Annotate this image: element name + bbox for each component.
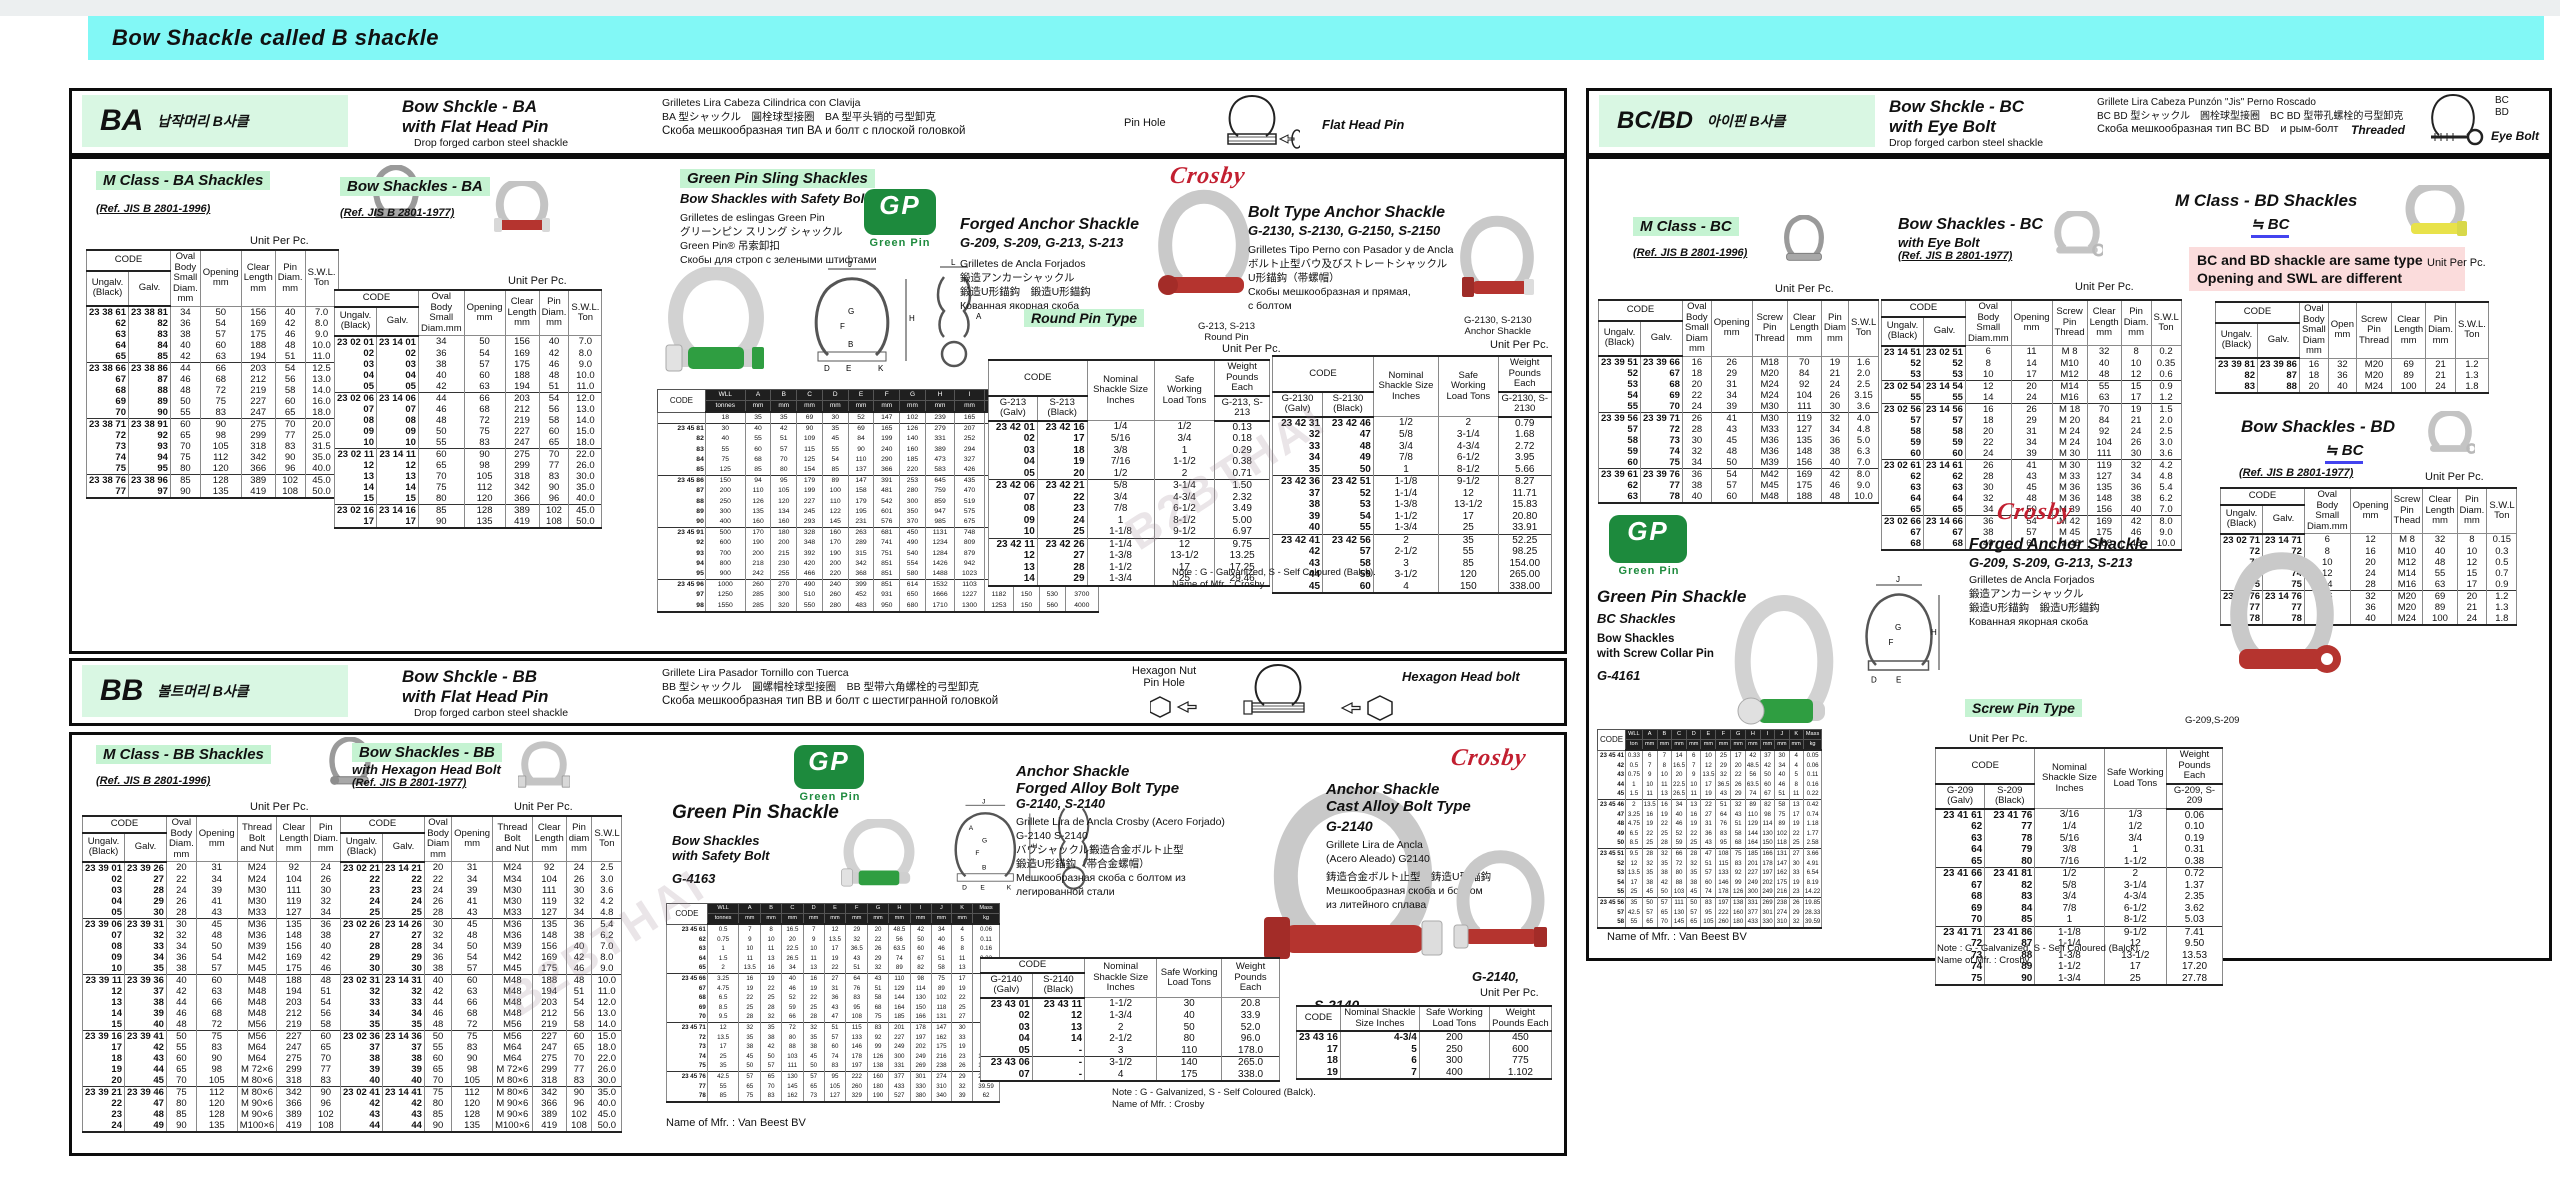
gp-bc-heading: Green Pin Shackle BC Shackles Bow Shackl…	[1597, 587, 1746, 683]
table-cell: 60	[464, 370, 505, 381]
table-cell: 48	[539, 370, 569, 381]
table-cell: 30	[822, 412, 848, 424]
table-cell: 194	[505, 381, 539, 393]
table-cell: 16	[1642, 810, 1657, 820]
table-cell: 07	[981, 1069, 1033, 1082]
table-cell: 102	[900, 412, 926, 424]
table-cell: 59	[781, 1003, 803, 1013]
table-cell: 23 41 81	[1985, 868, 2035, 880]
table-cell: 42	[1273, 546, 1323, 558]
table-cell: 7	[1657, 750, 1671, 761]
table-cell: 328	[797, 528, 823, 539]
table-cell: 131	[931, 1012, 952, 1022]
table-cell: 310	[931, 1082, 952, 1092]
table-cell: 57	[1923, 415, 1965, 426]
table-cell: 36	[2350, 602, 2391, 613]
table-cell: 3/4	[1373, 441, 1438, 453]
table-cell: 35	[803, 1033, 824, 1043]
table-cell: 104	[532, 874, 566, 885]
table-cell: 1182	[984, 590, 1013, 600]
table-cell: 202	[910, 1042, 931, 1052]
table-cell: 72	[667, 1033, 708, 1043]
table-cell: 12	[1154, 538, 1215, 550]
table-row: 23 45 410.336714610251742373040.05	[1598, 750, 1822, 761]
table-cell: 1103	[955, 580, 984, 591]
table-cell: 105	[824, 1082, 846, 1092]
table-cell: 75	[739, 1091, 761, 1102]
table-row: 53531017M1248120.6	[1882, 369, 2182, 381]
table-cell: 400	[705, 517, 745, 528]
table-cell: 69	[667, 1003, 708, 1013]
table-cell: 77	[566, 1064, 592, 1075]
table-cell: 69	[2423, 590, 2457, 602]
table-cell: 11.0	[569, 381, 602, 393]
table-cell: 65	[1882, 504, 1924, 516]
table-cell: M100×6	[493, 1120, 533, 1132]
table-cell: 5.4	[2151, 482, 2181, 493]
table-cell: 08	[335, 415, 377, 426]
table-cell: 6.2	[2151, 493, 2181, 504]
table-cell: 03	[981, 1022, 1033, 1034]
table-cell: 23 39 81	[2216, 358, 2258, 370]
table-cell: 65	[539, 437, 569, 449]
table-cell: 48	[196, 930, 237, 941]
table-cell: 22	[1642, 829, 1657, 839]
table-cell: M 80×6	[237, 1075, 277, 1087]
table-row: 38386090M642757022.0	[341, 1053, 622, 1064]
table-row: 7213.5353880355713392227197162336.54	[667, 1033, 1000, 1043]
table-cell: 6.2	[592, 930, 622, 941]
table-cell: 169	[241, 318, 275, 329]
table-cell: 13	[1657, 789, 1671, 799]
table-cell: M30	[237, 885, 277, 896]
table-cell: 29	[952, 1071, 973, 1081]
table-cell: 2	[1439, 417, 1498, 430]
table-cell: 748	[955, 528, 984, 539]
table-cell: M42	[1752, 469, 1787, 481]
gp-logo-bc-text: Green Pin	[1603, 565, 1695, 577]
table-cell: 3/8	[1087, 445, 1154, 457]
table-cell: 530	[1039, 590, 1065, 600]
table-cell: 70	[87, 407, 129, 419]
table-cell: 62	[1599, 480, 1641, 491]
table-cell: 70	[1787, 356, 1821, 368]
table-row: 23 42 3123 42 461/220.79	[1273, 417, 1552, 430]
table-cell: 175	[532, 963, 566, 975]
table-cell: 222	[846, 1071, 868, 1081]
table-row: 23 41 7123 41 861-1/89-1/27.41	[1936, 926, 2223, 938]
table-cell: 54	[1711, 469, 1752, 481]
table-cell: 47	[824, 1012, 846, 1022]
table-cell: 160	[868, 1071, 889, 1081]
table-cell: 389	[925, 445, 954, 455]
table-cell: M64	[493, 1042, 533, 1053]
table-cell: 160	[822, 528, 848, 539]
table-cell: 23 02 26	[341, 918, 383, 930]
table-cell: 14	[2011, 358, 2052, 369]
table-cell: 60	[745, 445, 771, 455]
table-cell: 419	[241, 486, 275, 498]
table-cell: 23 02 61	[1882, 459, 1924, 471]
table-cell: M33	[493, 907, 533, 919]
table-cell: 0.19	[2167, 833, 2223, 845]
table-cell: 52	[1598, 859, 1626, 869]
table-cell: 65	[566, 1042, 592, 1053]
table-cell: 194	[277, 986, 311, 997]
table-cell: 3.6	[2151, 448, 2181, 460]
table-cell: 1-3/4	[1087, 573, 1154, 586]
page-title: Bow Shackle called B shackle	[88, 25, 439, 51]
table-cell: 75	[1936, 973, 1985, 986]
bc-bow-heading: Bow Shackles - BC with Eye Bolt (Ref. JI…	[1898, 215, 2043, 262]
bd-note: BC and BD shackle are same type Opening …	[2189, 247, 2465, 291]
table-cell: 98	[464, 460, 505, 471]
bb-header-strip: BB 볼트머리 B사클 Bow Shckle - BB with Flat He…	[69, 658, 1567, 726]
table-cell: 645	[925, 476, 954, 487]
table-cell: 63	[667, 944, 708, 954]
table-cell: 2-1/2	[1085, 1033, 1157, 1045]
table-cell: 3700	[1065, 590, 1098, 600]
table-cell: 32	[1789, 917, 1803, 928]
table-cell: 23	[1037, 503, 1087, 515]
table-cell: 222	[1716, 908, 1731, 918]
table-cell: 5.0	[1849, 435, 1879, 446]
table-cell: 30.0	[569, 471, 602, 482]
table-cell: 128	[452, 1109, 493, 1120]
gp-sling-shackle-photo	[660, 267, 772, 385]
table-cell: 247	[241, 407, 275, 419]
table-cell: 32	[311, 896, 341, 907]
table-cell: 20	[2299, 381, 2328, 393]
table-cell: M 33	[2052, 471, 2087, 482]
table-cell: 25	[2104, 973, 2166, 986]
table-row: 496.522255222368358144130102221.77	[1598, 829, 1822, 839]
table-cell: 76	[1716, 819, 1731, 829]
eye-bolt-label: Eye Bolt	[2491, 129, 2539, 143]
table-row: 5742.5576513057952221603773012742928.33	[1598, 908, 1822, 918]
table-cell: 238	[1775, 897, 1789, 907]
table-row: 23 02 4123 14 4175112M 80×63429035.0	[341, 1086, 622, 1098]
table-cell: 50.0	[592, 1120, 622, 1132]
table-cell: 100	[2423, 613, 2457, 625]
table-cell: 675	[955, 517, 984, 528]
table-cell: 60	[566, 1030, 592, 1042]
table-cell: 50	[1157, 1022, 1222, 1034]
table-cell: 851	[874, 580, 900, 591]
g4163-table: CODEWLLABCDEFGHIJKMasstonnesmmmmmmmmmmmm…	[666, 903, 1000, 1103]
g4161-table: CODEWLLABCDEFGHIJKMasstonmmmmmmmmmmmmmmm…	[1597, 729, 1822, 929]
table-cell: 17	[335, 516, 377, 528]
table-cell: 5/16	[1087, 433, 1154, 445]
bow-bd-eq: ≒ BC	[2325, 441, 2363, 464]
table-cell: 13.53	[2167, 950, 2223, 962]
table-cell: 32	[1682, 446, 1711, 457]
table-cell: 28	[1642, 848, 1657, 858]
table-cell: 12	[707, 1022, 739, 1032]
table-cell: 1.3	[2455, 370, 2488, 381]
table-cell: 575	[955, 507, 984, 517]
table-cell: 540	[900, 549, 926, 559]
table-cell: 70	[539, 448, 569, 460]
table-cell: 24	[382, 896, 424, 907]
table-cell: 21	[2457, 602, 2487, 613]
flat-head-pin-diagram-icon	[1200, 92, 1300, 150]
table-row: 7535505711150831971383312692382619.85	[667, 1061, 1000, 1071]
table-cell: 227	[277, 1030, 311, 1042]
g2130-shackle-photo	[1454, 215, 1540, 311]
table-cell: 85	[1985, 914, 2035, 926]
table-row: 23 38 7123 38 9160902757020.0	[87, 419, 339, 431]
table-row: 050542631945111.0	[335, 381, 602, 393]
table-cell: M42	[493, 952, 533, 963]
table-row: 709055832476518.0	[87, 407, 339, 419]
table-cell: 299	[241, 430, 275, 441]
table-cell: 290	[874, 455, 900, 465]
table-cell: 38	[1273, 499, 1323, 511]
table-cell: 135	[277, 918, 311, 930]
table-cell: 144	[888, 993, 910, 1003]
table-cell: 66	[196, 997, 237, 1008]
table-cell: 158	[848, 486, 874, 496]
table-cell: 04	[335, 370, 377, 381]
table-cell: 68	[667, 993, 708, 1003]
table-cell: 80	[1157, 1033, 1222, 1045]
table-cell: 11	[803, 954, 824, 964]
table-cell: 150	[1439, 581, 1498, 594]
table-cell: 179	[848, 497, 874, 507]
table-row: 63633045M 36135365.4	[1882, 482, 2182, 493]
table-cell: 90	[848, 445, 874, 455]
table-cell: 52.25	[1498, 534, 1552, 546]
table-cell: 9.50	[2167, 938, 2223, 950]
table-cell: M56	[493, 1030, 533, 1042]
table-cell: 69	[2392, 358, 2426, 370]
table-cell: 15.83	[1498, 499, 1552, 511]
table-cell: 9	[1687, 770, 1701, 780]
table-cell: 102	[275, 475, 305, 487]
table-cell: 9.0	[592, 963, 622, 975]
table-cell: 260	[745, 580, 771, 591]
table-cell: 11	[1789, 789, 1803, 799]
table-cell: 78	[1985, 833, 2035, 845]
table-row: 508.525285925439568164150118252.58	[1598, 838, 1822, 848]
table-cell: 54	[566, 997, 592, 1008]
table-cell: 29	[124, 896, 166, 907]
table-cell: 33	[952, 1033, 973, 1043]
table-cell: 140	[900, 434, 926, 444]
table-cell: M39	[237, 941, 277, 952]
table-cell: 49	[1598, 829, 1626, 839]
table-cell: 83	[1701, 897, 1716, 907]
table-cell: 26	[1789, 897, 1803, 907]
page-title-bar: Bow Shackle called B shackle	[88, 16, 2544, 60]
table-cell: 162	[931, 1033, 952, 1043]
table-cell: M33	[237, 907, 277, 919]
table-cell: 28	[2350, 579, 2391, 591]
bb-mfr-vanbeest: Name of Mfr. : Van Beest BV	[666, 1117, 806, 1129]
table-row: 68833/44-3/42.35	[1936, 891, 2223, 903]
table-cell: 10.0	[2151, 538, 2181, 550]
table-cell: M30	[1752, 401, 1787, 413]
table-row: 37521-1/41211.71	[1273, 488, 1552, 500]
table-cell: 16.5	[781, 924, 803, 935]
table-cell: M14	[2391, 568, 2423, 579]
table-cell: 51	[846, 963, 868, 973]
table-cell: 2.32	[1215, 492, 1270, 504]
table-cell: 24	[166, 885, 196, 896]
table-cell: 7/16	[1087, 456, 1154, 468]
table-cell: 85	[128, 351, 170, 363]
table-cell: 54	[1323, 511, 1374, 523]
table-cell: 1	[1626, 780, 1643, 790]
bb-m-class-ref: (Ref. JIS B 2801-1996)	[96, 775, 210, 787]
table-cell: 23 39 46	[124, 1086, 166, 1098]
table-row: 23 02 3123 14 314060M481884810.0	[341, 974, 622, 986]
table-cell: 70	[275, 419, 305, 431]
table-cell: M 72×6	[493, 1064, 533, 1075]
table-cell: 23 45 96	[658, 580, 706, 591]
table-cell: 88	[2257, 381, 2299, 393]
table-cell: 32	[2087, 346, 2121, 358]
table-cell: 40	[931, 935, 952, 945]
table-cell: M48	[237, 1008, 277, 1019]
hexagon-nut-icon	[1150, 695, 1210, 719]
table-row: 23 39 8123 39 861632M2069211.2	[2216, 358, 2489, 370]
table-cell: 8	[952, 944, 973, 954]
table-cell: 39	[1273, 511, 1323, 523]
table-cell: 22	[739, 993, 761, 1003]
table-cell: 166	[1760, 848, 1774, 858]
table-cell: 12	[1032, 1010, 1084, 1022]
table-cell: 510	[797, 590, 823, 600]
table-cell: 1.18	[1803, 819, 1821, 829]
table-cell: 80	[170, 463, 200, 475]
table-cell: 88	[781, 1042, 803, 1052]
table-cell: 2-1/2	[1373, 546, 1438, 558]
table-cell: 3/4	[2035, 891, 2104, 903]
bb-hex-nut-label: Hexagon Nut Pin Hole	[1132, 665, 1196, 689]
table-cell: 59	[1882, 437, 1924, 448]
table-cell: 23 39 86	[2257, 358, 2299, 370]
table-row: 09343654M42169428.0	[83, 952, 374, 963]
table-cell: 36	[2121, 482, 2151, 493]
table-cell: 85	[166, 1109, 196, 1120]
table-cell: 1.77	[1803, 829, 1821, 839]
table-cell: 60	[1599, 457, 1641, 469]
table-cell: 74	[1745, 789, 1760, 799]
crosby-logo-bc: Crosby	[1995, 499, 2074, 526]
table-cell: 342	[241, 452, 275, 463]
table-cell: 54	[464, 348, 505, 359]
table-cell: 32	[1642, 859, 1657, 869]
table-cell: 55	[2087, 380, 2121, 392]
table-cell: 175	[277, 963, 311, 975]
table-cell: 6	[2304, 534, 2350, 546]
table-cell: M64	[237, 1053, 277, 1064]
table-cell: 26	[2121, 437, 2151, 448]
table-cell: 92	[277, 862, 311, 874]
table-cell: 35	[707, 1061, 739, 1071]
table-cell: 851	[874, 559, 900, 569]
table-cell: 92	[658, 538, 706, 548]
table-cell: 128	[464, 504, 505, 516]
table-cell: 22	[824, 963, 846, 973]
table-cell: 51	[1716, 799, 1731, 809]
table-cell: 35	[1273, 464, 1323, 476]
bb-bow-table-wrap: CODEOval Body Diam mmOpening mmThread Bo…	[340, 815, 592, 1133]
g2140-cast-table-wrap: CODENominal Shackle Size InchesSafe Work…	[1296, 1005, 1552, 1080]
bow-bd-ref: (Ref. JIS B 2801-1977)	[2239, 467, 2353, 479]
table-cell: 126	[900, 424, 926, 435]
table-cell: 490	[797, 580, 823, 591]
table-cell: 1.5	[1626, 789, 1643, 799]
table-cell: 25	[739, 1003, 761, 1013]
svg-text:B: B	[982, 865, 987, 872]
table-cell: 58	[566, 1019, 592, 1031]
table-cell: 127	[2087, 471, 2121, 482]
table-cell: 48	[1821, 491, 1848, 503]
table-cell: 110	[1745, 810, 1760, 820]
table-cell: 146	[1716, 878, 1731, 888]
table-cell: M10	[2391, 546, 2423, 557]
table-row: 5212323572325111583201178147304.91	[1598, 859, 1822, 869]
table-cell: 9.0	[2151, 527, 2181, 538]
table-cell: 23 42 51	[1323, 476, 1374, 488]
table-cell: 19	[1297, 1067, 1341, 1080]
table-cell: 36	[311, 918, 341, 930]
table-cell: 2	[1373, 534, 1438, 546]
table-cell: 230	[771, 559, 797, 569]
table-cell: 65	[1936, 856, 1985, 868]
table-cell: 24	[2350, 568, 2391, 579]
table-cell: 53	[1599, 379, 1641, 390]
table-cell: 13.25	[1215, 550, 1270, 562]
table-cell: 77	[667, 1082, 708, 1092]
table-cell: 30	[1965, 482, 2011, 493]
table-cell: 60	[1711, 491, 1752, 503]
table-cell: 180	[771, 528, 797, 539]
table-cell: 1.3	[2487, 602, 2517, 613]
table-cell: 90	[539, 482, 569, 493]
table-cell: 119	[1787, 413, 1821, 425]
table-cell: 419	[505, 516, 539, 528]
table-cell: 3-1/4	[1439, 429, 1498, 441]
table-cell: 550	[797, 601, 823, 612]
table-cell: 23 45 76	[667, 1071, 708, 1081]
table-cell: 69	[1936, 903, 1985, 915]
bb-korean-label: 볼트머리 B사클	[157, 681, 248, 701]
table-cell: 34	[166, 941, 196, 952]
table-cell: 43	[846, 954, 868, 964]
table-cell: 42	[910, 924, 931, 935]
table-cell: 09	[335, 426, 377, 437]
table-cell: 3/4	[1087, 492, 1154, 504]
table-cell: 2.5	[1849, 379, 1879, 390]
table-cell: 112	[200, 452, 241, 463]
green-pin-logo-text: Green Pin	[858, 237, 942, 249]
table-cell: 19	[952, 1042, 973, 1052]
table-row: 23 02 0623 14 0644662035412.0	[335, 392, 602, 404]
table-cell: 130	[910, 993, 931, 1003]
table-cell: 35.0	[592, 1086, 622, 1098]
table-cell: 27	[341, 930, 383, 941]
table-row: 23 45 610.57816.5712292048.5423440.06	[667, 924, 1000, 935]
table-cell: 219	[241, 385, 275, 396]
table-cell: 8.27	[1498, 476, 1552, 488]
table-cell: M42	[237, 952, 277, 963]
table-cell: 23	[1789, 887, 1803, 897]
table-cell: 12	[1701, 761, 1716, 771]
